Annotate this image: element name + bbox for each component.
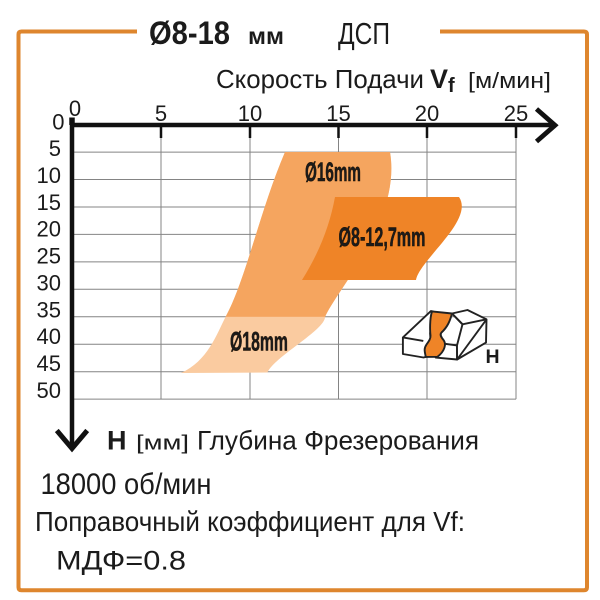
svg-text:15: 15 [37,190,61,215]
svg-text:0: 0 [69,96,81,121]
svg-text:18000 об/мин: 18000 об/мин [41,468,212,501]
svg-text:Ø8-18: Ø8-18 [149,15,230,51]
svg-text:мм: мм [248,23,284,49]
svg-text:ДСП: ДСП [338,16,390,51]
svg-text:30: 30 [37,270,61,295]
svg-text:Глубина Фрезерования: Глубина Фрезерования [197,426,479,456]
svg-text:20: 20 [37,217,61,242]
svg-text:40: 40 [37,324,61,349]
svg-text:20: 20 [415,101,439,126]
svg-text:45: 45 [37,351,61,376]
svg-text:[м/мин]: [м/мин] [468,68,551,93]
svg-text:МДФ=0.8: МДФ=0.8 [56,546,186,576]
svg-text:H: H [486,346,500,368]
svg-text:Ø8-12,7mm: Ø8-12,7mm [339,222,426,252]
svg-text:Поправочный коэффициент для Vf: Поправочный коэффициент для Vf: [35,506,465,537]
svg-text:[мм]: [мм] [136,433,189,455]
svg-text:35: 35 [37,297,61,322]
svg-text:10: 10 [37,163,61,188]
svg-text:Ø16mm: Ø16mm [305,157,361,187]
svg-text:25: 25 [504,101,528,126]
svg-text:Ø18mm: Ø18mm [230,327,288,357]
svg-text:25: 25 [37,244,61,269]
svg-text:5: 5 [155,101,167,126]
svg-text:10: 10 [238,101,262,126]
svg-text:H: H [107,426,127,456]
svg-text:V: V [430,64,448,94]
svg-text:Скорость Подачи: Скорость Подачи [216,64,424,94]
svg-text:5: 5 [49,136,61,161]
svg-text:f: f [448,75,455,97]
svg-text:15: 15 [326,101,350,126]
svg-text:0: 0 [52,110,64,135]
svg-text:50: 50 [37,378,61,403]
